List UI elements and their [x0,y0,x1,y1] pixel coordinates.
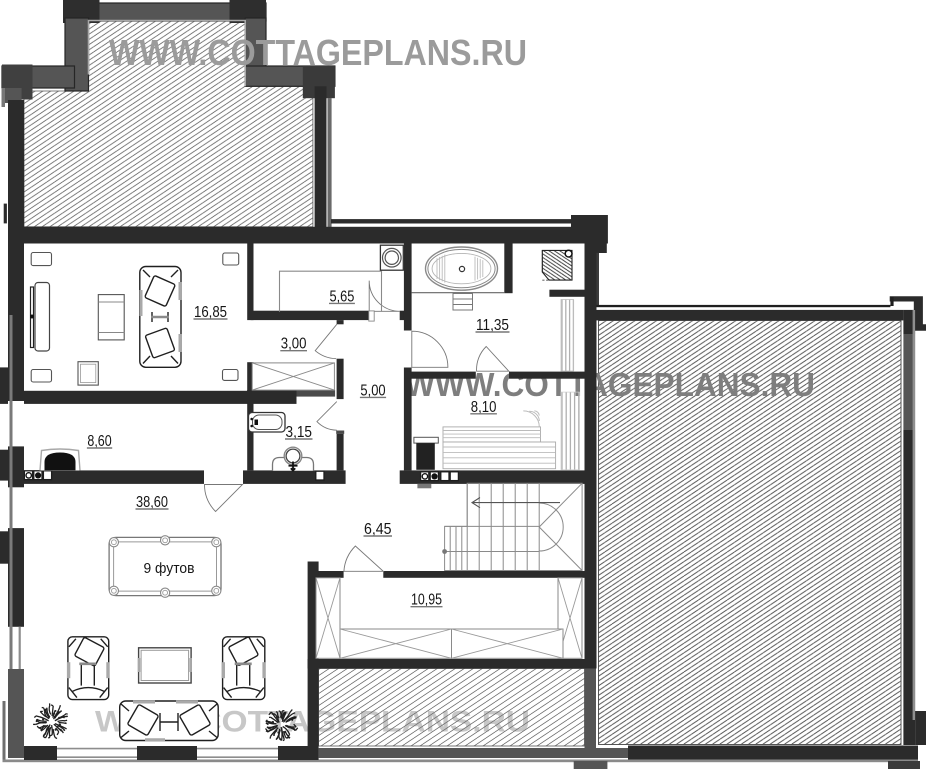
svg-text:WWW.COTTAGEPLANS.RU: WWW.COTTAGEPLANS.RU [109,32,527,73]
svg-text:WWW.COTTAGEPLANS.RU: WWW.COTTAGEPLANS.RU [405,366,815,403]
svg-text:9 футов: 9 футов [144,561,195,577]
